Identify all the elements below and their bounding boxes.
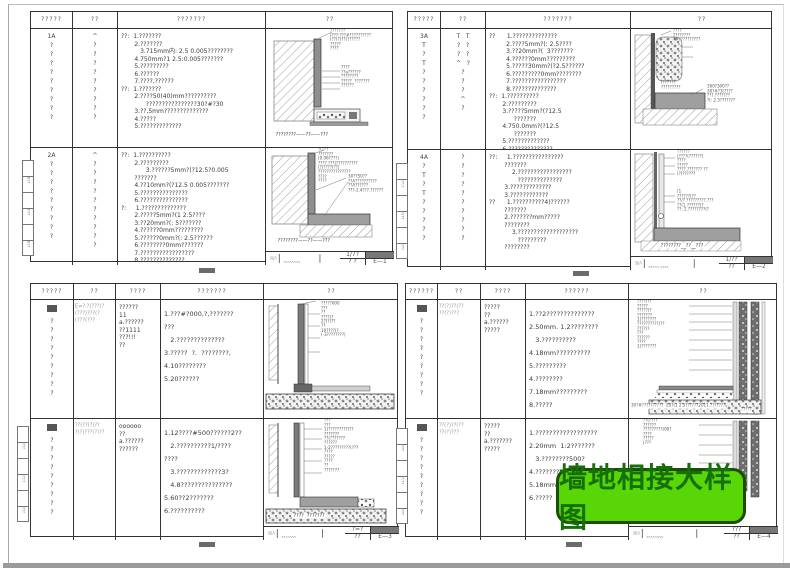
title-block-name: ????????????????	[282, 254, 320, 263]
leader-labels: ????(????????????(????????1(????????????…	[637, 300, 665, 349]
title-block-fill	[366, 252, 394, 259]
notes-text: 1.??2??????????????2.50mm. 1.2???????? 3…	[526, 300, 628, 412]
column-header: ????	[481, 284, 526, 299]
column-header: ??????	[526, 284, 629, 299]
notes-text: ??: 1.??????? 2.??????? 3.715mm内: 2.5 0.…	[118, 29, 265, 131]
title-block-logo: 图A	[268, 254, 279, 263]
drawing-caption: ????????——??——???	[274, 132, 330, 138]
detail-drawing-partition-floor: ??????1(?????????(???????????(??????????…	[264, 419, 399, 540]
edge-tabs-panel4: ??? ?;?? ???	[396, 428, 408, 524]
page-mark	[566, 542, 582, 547]
page-mark	[573, 271, 589, 276]
code-column: ?????????	[406, 433, 437, 517]
panel-bottom-left: ????? ?? ???? ??????? ?? ????????? E=?.?…	[30, 283, 398, 537]
title-block-scale: 1/??	[719, 257, 744, 264]
drawing-caption: ????????__??__???	[659, 243, 705, 249]
detail-drawing-insulated-wall: ?????????????#?????????? (??????????????…	[631, 29, 773, 149]
notes-text: ?? 1.?????????????? 2.????5mm?(: 2.5????…	[486, 29, 630, 149]
detail-drawing-wall-corner: ????(????????????(????????1(????????????…	[629, 300, 778, 418]
title-block-scale: 1/7?	[340, 252, 365, 259]
drawing-caption: ???? ???????	[292, 513, 326, 519]
column-header: ???????	[118, 12, 266, 28]
material-column: ???????a.????????????	[481, 419, 525, 453]
notes-text: 1.12????#500??????2?? 2.??????????1/????…	[161, 419, 263, 518]
detail-drawing-wall-base: ??????(????(??????)?????????????.???????…	[631, 150, 773, 270]
sheet-number: E—1	[366, 259, 394, 265]
title-block-fill	[745, 257, 773, 264]
leader-labels: ?????????????#??????????	[673, 29, 700, 42]
column-header: ??	[441, 12, 486, 28]
column-header: ??	[631, 12, 773, 28]
title-block: 图A ??????????????? ?=? ?? E—3	[264, 526, 399, 540]
column-header: ??	[264, 284, 399, 299]
leader-labels: 30??50????A????????????A?????????-2.4???…	[348, 175, 383, 193]
leader-labels: ???????(???:???#??????????(??(?)??)?????…	[330, 29, 371, 51]
leader-labels: ?????	[741, 408, 752, 412]
column-header: ????	[116, 284, 161, 299]
section-drawing	[631, 29, 773, 147]
material-column: ???????a.???????????	[481, 300, 525, 334]
legend-swatch	[417, 424, 427, 431]
title-block-fill	[371, 527, 399, 534]
symbol-column: T T? ?? ?^ ????^?	[441, 29, 485, 113]
column-header: ??	[74, 284, 116, 299]
legend-swatch	[47, 424, 57, 431]
panel-top-right: ????? ?? ??????? ?? 3AT?T?????? T T? ?? …	[407, 11, 772, 267]
detail-drawing-partition-base: ?????000?????????(?2?(?(????10????(?(-3?…	[264, 300, 399, 418]
leader-labels: (1??????(????/? ?????????.?????(1 ??????…	[677, 190, 713, 212]
title-block-name: ???????????????	[280, 529, 323, 538]
title-block-fill	[750, 527, 778, 534]
title-block: 图A ????? ????????? ???? 1/?? ?? E—2	[631, 256, 773, 270]
sheet-number: E—4	[750, 534, 778, 540]
title-block-name: ????? ????????? ????	[647, 259, 695, 268]
code-column: 3AT?T??????	[408, 29, 440, 122]
drawing-caption: ????????——??——???	[276, 238, 332, 244]
leader-labels: ??(???????????????????(00??????????(???	[643, 419, 671, 446]
column-header: ??	[629, 284, 778, 299]
title-block-logo: 图A	[633, 259, 644, 268]
bottom-scan-edge	[3, 563, 790, 568]
material-column: ??????11a.????????1111???!!!??	[116, 300, 160, 349]
title-block-scale: ?=?	[345, 527, 370, 534]
symbol-column: ^??????????	[73, 148, 117, 250]
location-column: E=?.?(???(?(???)???(?(???(???	[74, 300, 109, 327]
leader-labels: ??????a??????????????????? ?????????????	[341, 66, 370, 88]
edge-tabs-panel1: E?? FY? E??	[22, 160, 34, 256]
code-column: 4A?T?T?????	[408, 150, 440, 243]
code-column: ?????????	[31, 433, 73, 517]
code-column: 2A?????????	[31, 148, 72, 241]
code-column: ?????????	[31, 314, 73, 398]
column-header: ?????	[31, 12, 73, 28]
edge-tabs-panel2: ??;? ?(?? ???	[396, 163, 408, 259]
symbol-column: ^?????????	[73, 29, 117, 122]
code-column: ?????????	[406, 314, 437, 398]
column-header: ???????	[161, 284, 264, 299]
banner-title: 墙地相接大样图	[559, 456, 743, 536]
column-header: ??	[438, 284, 481, 299]
panel-top-left: ????? ?? ??????? ?? 1A????????? ^???????…	[30, 11, 393, 262]
legend-swatch	[47, 305, 57, 312]
symbol-column: ??????????	[441, 150, 485, 243]
code-column: 1A?????????	[31, 29, 72, 122]
leader-labels: 300?300??30?#?3(???????.????????(: 2.5??…	[707, 85, 735, 103]
notes-text: 1.???#?000,?,?????????? 2.??????????????…	[161, 300, 263, 386]
leader-labels: ??????1(?????????(???????????(??????????…	[324, 419, 358, 473]
location-column: ??(?)??(????(?)???	[438, 300, 474, 320]
column-header: ?????	[31, 284, 74, 299]
column-header: ??????	[406, 284, 438, 299]
column-header: ??	[266, 12, 394, 28]
legend-swatch	[417, 305, 427, 312]
scanned-drawing-sheet: ????? ?? ??????? ?? 1A????????? ^???????…	[0, 0, 790, 584]
column-header: ?????	[408, 12, 441, 28]
sheet-number: E—2	[745, 264, 773, 270]
leader-labels: ??????(????(??????)?????????????.???????…	[677, 150, 708, 177]
material-callouts: 30?#?????????? 20?(1 2.5??????2011.?????…	[631, 404, 725, 408]
page-mark	[199, 542, 215, 547]
location-column: ??(?)??(????(?)???	[438, 419, 474, 439]
notes-text: ??: 1.???????????????? ??????? 2.???????…	[486, 150, 630, 252]
title-block-logo: 图A	[266, 529, 277, 538]
material-column: oooooo??a.????????????	[116, 419, 160, 453]
sheet-number: E—3	[371, 534, 399, 540]
detail-drawing-skirting: ???????(???:???#??????????(??(?)??)?????…	[266, 29, 394, 147]
title-block: 图A ???????????????? 1/7? ? ? E—1	[266, 251, 394, 265]
location-column: ??(??(?)???(?)???(?)??	[74, 419, 109, 439]
leader-labels: ?????000?????????(?2?(?(????10????(?(-3?…	[321, 302, 346, 338]
detail-drawing-floor-junction: ?(??????????(0.06????)????.???(?????????…	[266, 148, 394, 265]
column-header: ??	[73, 12, 118, 28]
column-header: ???????	[486, 12, 631, 28]
leader-labels: (???????????????	[661, 81, 680, 90]
edge-tabs-panel3: ??? ??;? ???	[17, 426, 29, 522]
notes-text: ??: 1.?????????? 2.????????? 3.??????5mm…	[118, 148, 265, 265]
page-mark	[199, 268, 215, 273]
detail-banner: 墙地相接大样图	[556, 468, 746, 524]
